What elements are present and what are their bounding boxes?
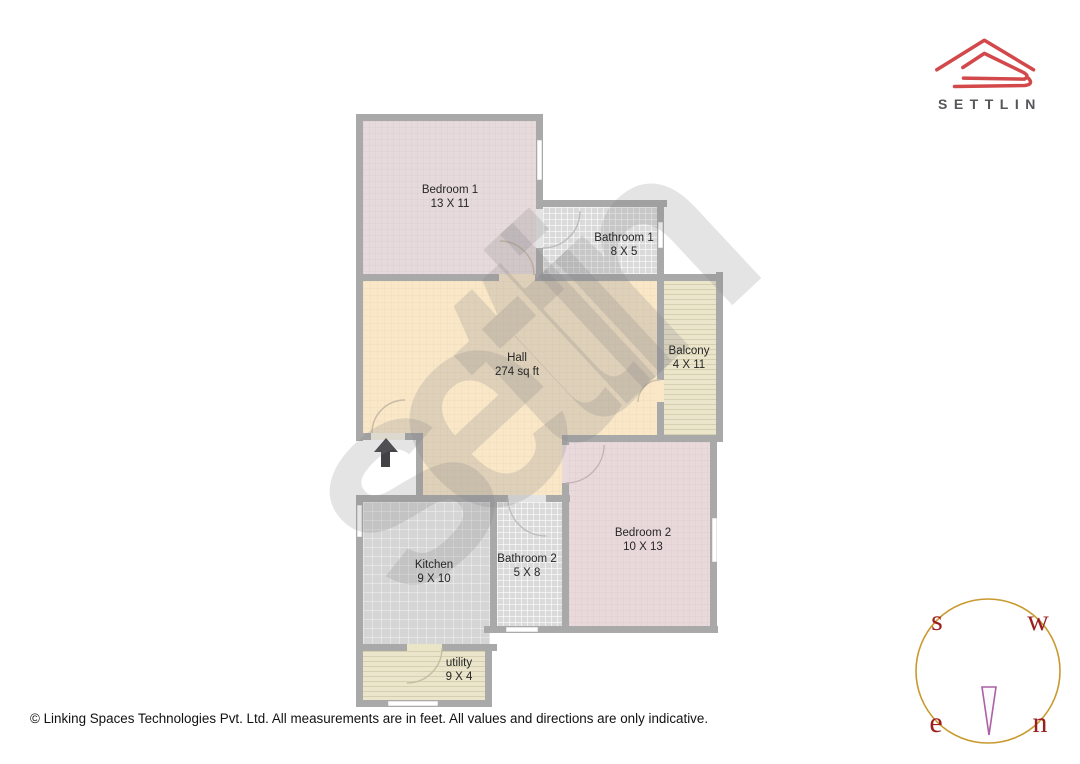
compass-letter-n: n [1033,706,1048,740]
room-label-kitchen: Kitchen 9 X 10 [415,558,453,586]
compass-letter-w: w [1027,604,1049,638]
floorplan-page: SETTLIN [0,0,1080,764]
compass-letter-e: e [929,706,942,740]
compass-letter-s: s [931,604,943,638]
room-name: Kitchen [415,558,453,572]
room-name: Balcony [669,344,710,358]
door-arc [508,498,546,536]
room-dims: 9 X 4 [446,670,473,684]
room-dims: 8 X 5 [594,245,653,259]
entrance-arrow-icon [372,437,400,469]
room-name: utility [446,656,473,670]
door-arc [638,380,660,402]
room-label-bedroom-2: Bedroom 2 10 X 13 [615,526,671,554]
door-arc [566,445,604,483]
room-name: Bedroom 2 [615,526,671,540]
room-label-bathroom-1: Bathroom 1 8 X 5 [594,231,653,259]
room-label-balcony: Balcony 4 X 11 [669,344,710,372]
room-dims: 274 sq ft [495,365,539,379]
room-name: Bathroom 1 [594,231,653,245]
room-dims: 13 X 11 [422,197,478,211]
room-dims: 4 X 11 [669,358,710,372]
compass-needle-icon [982,687,996,735]
room-label-bedroom-1: Bedroom 1 13 X 11 [422,183,478,211]
room-dims: 9 X 10 [415,572,453,586]
door-arc [407,648,442,683]
room-name: Bathroom 2 [497,552,556,566]
room-name: Hall [495,351,539,365]
room-dims: 5 X 8 [497,566,556,580]
door-arc [500,241,534,275]
room-dims: 10 X 13 [615,540,671,554]
door-arc [372,400,405,433]
room-name: Bedroom 1 [422,183,478,197]
room-label-utility: utility 9 X 4 [446,656,473,684]
copyright-text: © Linking Spaces Technologies Pvt. Ltd. … [30,711,708,726]
room-label-hall: Hall 274 sq ft [495,351,539,379]
door-arc [543,211,580,248]
room-label-bathroom-2: Bathroom 2 5 X 8 [497,552,556,580]
